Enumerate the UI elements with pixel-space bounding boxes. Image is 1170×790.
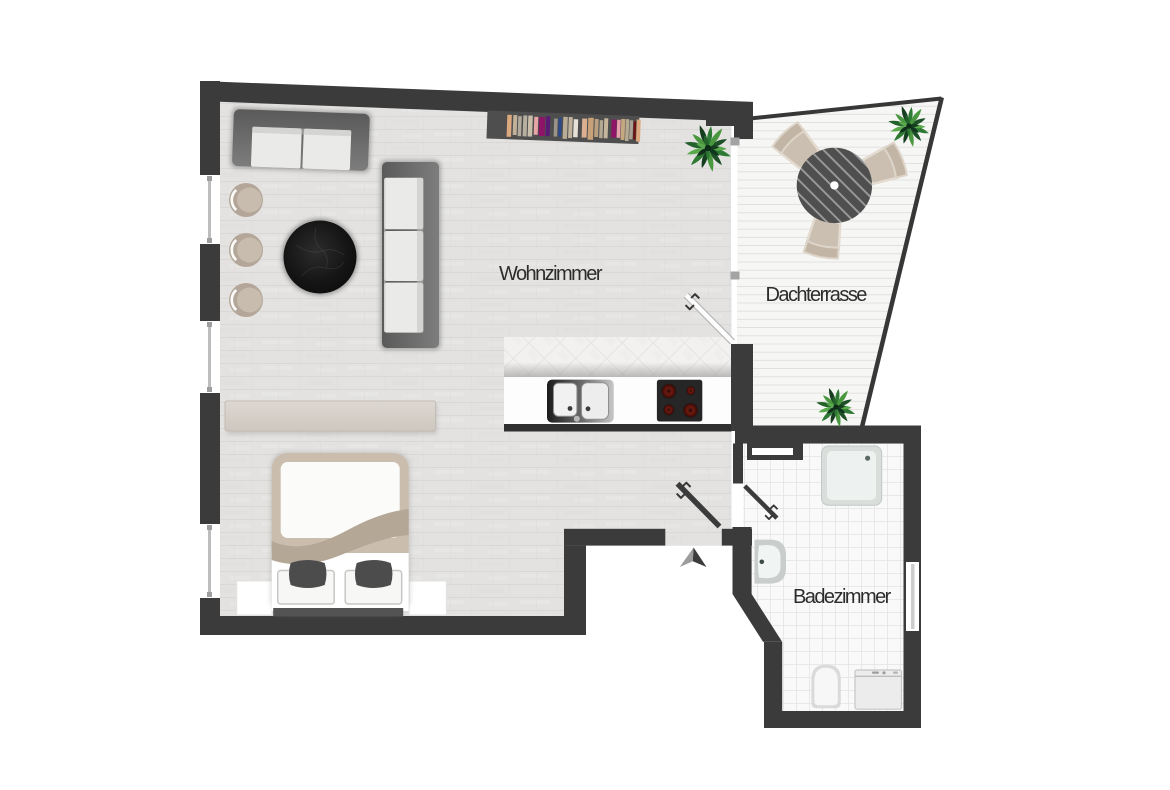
svg-text:Badezimmer: Badezimmer bbox=[793, 586, 892, 608]
svg-text:Dachterrasse: Dachterrasse bbox=[766, 284, 868, 306]
svg-text:Wohnzimmer: Wohnzimmer bbox=[499, 263, 603, 285]
